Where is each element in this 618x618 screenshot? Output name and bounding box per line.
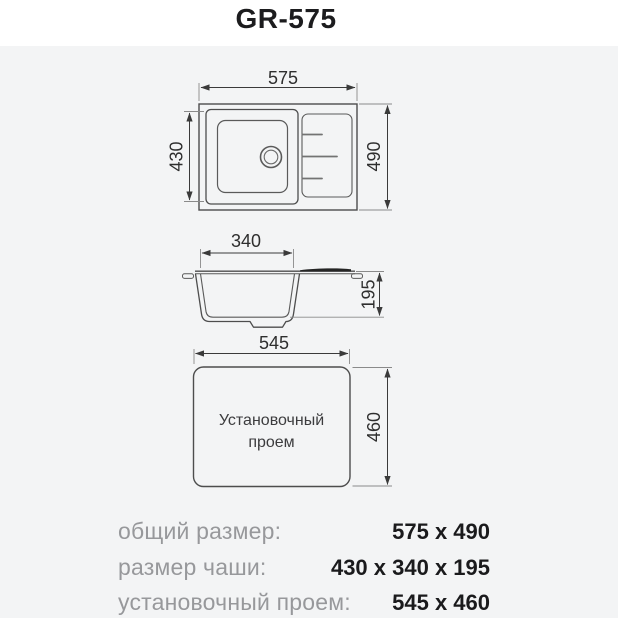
- drainboard-grooves: [303, 135, 338, 179]
- bowl-inner: [218, 121, 288, 193]
- dim-label-cutout-depth: 460: [364, 412, 384, 442]
- dim-label-bowl-length: 340: [231, 231, 261, 251]
- drain-hole-outer: [261, 147, 282, 168]
- dim-bowl-length-ext: [201, 249, 294, 268]
- dim-label-bowl-depth: 430: [166, 141, 186, 171]
- drain-hole-inner: [264, 150, 278, 164]
- dim-label-bowl-height: 195: [358, 279, 378, 309]
- mount-clip-right: [352, 274, 363, 279]
- dim-label-cutout-width: 545: [259, 333, 289, 353]
- bowl-wall-inner: [201, 274, 295, 317]
- spec-label-bowl: размер чаши:: [118, 554, 267, 580]
- spec-label-cutout: установочный проем:: [118, 589, 351, 615]
- dim-label-overall-depth: 490: [364, 141, 384, 171]
- cutout-caption-line1: Установочный: [219, 412, 324, 429]
- bowl-wall-outer: [196, 274, 300, 327]
- spec-value-overall: 575 x 490: [392, 519, 490, 545]
- mount-clip-left: [183, 274, 194, 279]
- section-view: 340 195: [183, 231, 385, 327]
- dim-label-overall-width: 575: [268, 68, 298, 88]
- top-view: 575 430: [166, 68, 392, 210]
- spec-row-bowl: размер чаши: 430 x 340 x 195: [118, 554, 490, 581]
- product-spec-sheet: GR-575 575: [0, 0, 618, 618]
- spec-value-bowl: 430 x 340 x 195: [331, 555, 490, 581]
- cutout-caption-line2: проем: [248, 434, 294, 451]
- spec-row-cutout: установочный проем: 545 x 460: [118, 589, 490, 616]
- dim-bowl-depth-ext: [184, 112, 204, 202]
- spec-row-overall: общий размер: 575 x 490: [118, 518, 490, 545]
- spec-label-overall: общий размер:: [118, 518, 281, 544]
- cutout-view: 545 Установочный проем 460: [194, 333, 393, 487]
- drainboard-area: [302, 114, 352, 197]
- drainboard-section: [300, 268, 351, 271]
- spec-value-cutout: 545 x 460: [392, 590, 490, 616]
